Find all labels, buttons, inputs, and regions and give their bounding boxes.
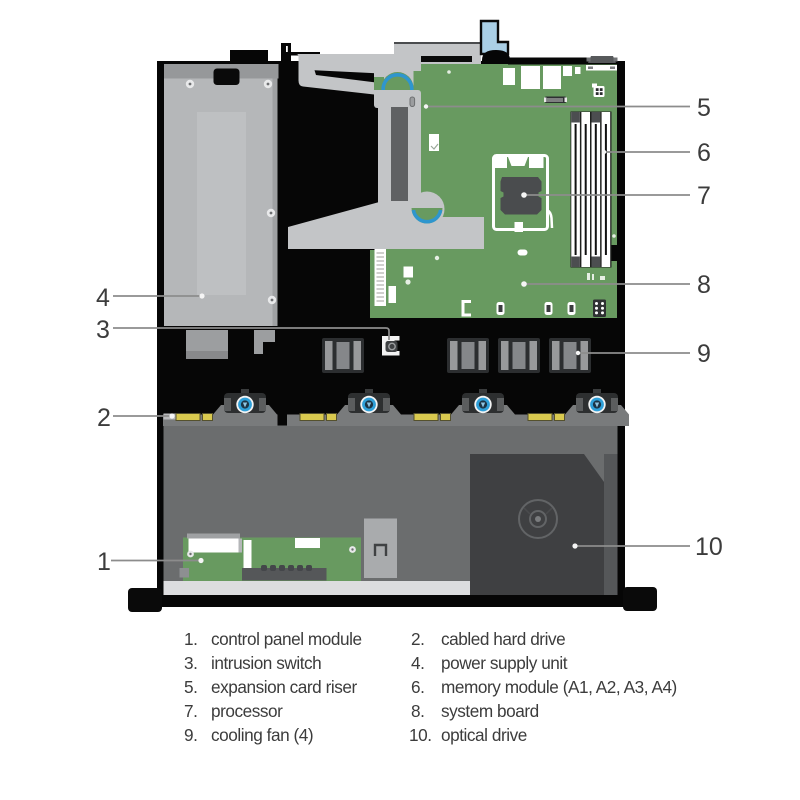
svg-text:cabled hard drive: cabled hard drive xyxy=(441,629,565,649)
svg-text:system board: system board xyxy=(441,701,539,721)
svg-text:4: 4 xyxy=(96,284,110,312)
svg-text:10.: 10. xyxy=(409,725,432,745)
svg-text:6.: 6. xyxy=(411,677,424,697)
svg-text:9: 9 xyxy=(697,340,711,368)
svg-text:control panel module: control panel module xyxy=(211,629,362,649)
svg-text:1: 1 xyxy=(97,548,111,576)
svg-text:5: 5 xyxy=(697,94,711,122)
svg-text:8: 8 xyxy=(697,271,711,299)
svg-text:3: 3 xyxy=(96,316,110,344)
svg-text:optical drive: optical drive xyxy=(441,725,527,745)
svg-text:8.: 8. xyxy=(411,701,424,721)
svg-text:expansion card riser: expansion card riser xyxy=(211,677,357,697)
svg-text:processor: processor xyxy=(211,701,283,721)
svg-text:power supply unit: power supply unit xyxy=(441,653,568,673)
svg-text:intrusion switch: intrusion switch xyxy=(211,653,321,673)
svg-text:1.: 1. xyxy=(184,629,197,649)
svg-text:7.: 7. xyxy=(184,701,197,721)
svg-text:2.: 2. xyxy=(411,629,424,649)
svg-text:memory module (A1, A2, A3, A4): memory module (A1, A2, A3, A4) xyxy=(441,677,677,697)
svg-text:6: 6 xyxy=(697,139,711,167)
svg-text:10: 10 xyxy=(695,533,723,561)
svg-text:4.: 4. xyxy=(411,653,424,673)
svg-text:2: 2 xyxy=(97,404,111,432)
svg-text:7: 7 xyxy=(697,182,711,210)
svg-text:5.: 5. xyxy=(184,677,197,697)
svg-text:cooling fan (4): cooling fan (4) xyxy=(211,725,313,745)
svg-text:9.: 9. xyxy=(184,725,197,745)
svg-text:3.: 3. xyxy=(184,653,197,673)
